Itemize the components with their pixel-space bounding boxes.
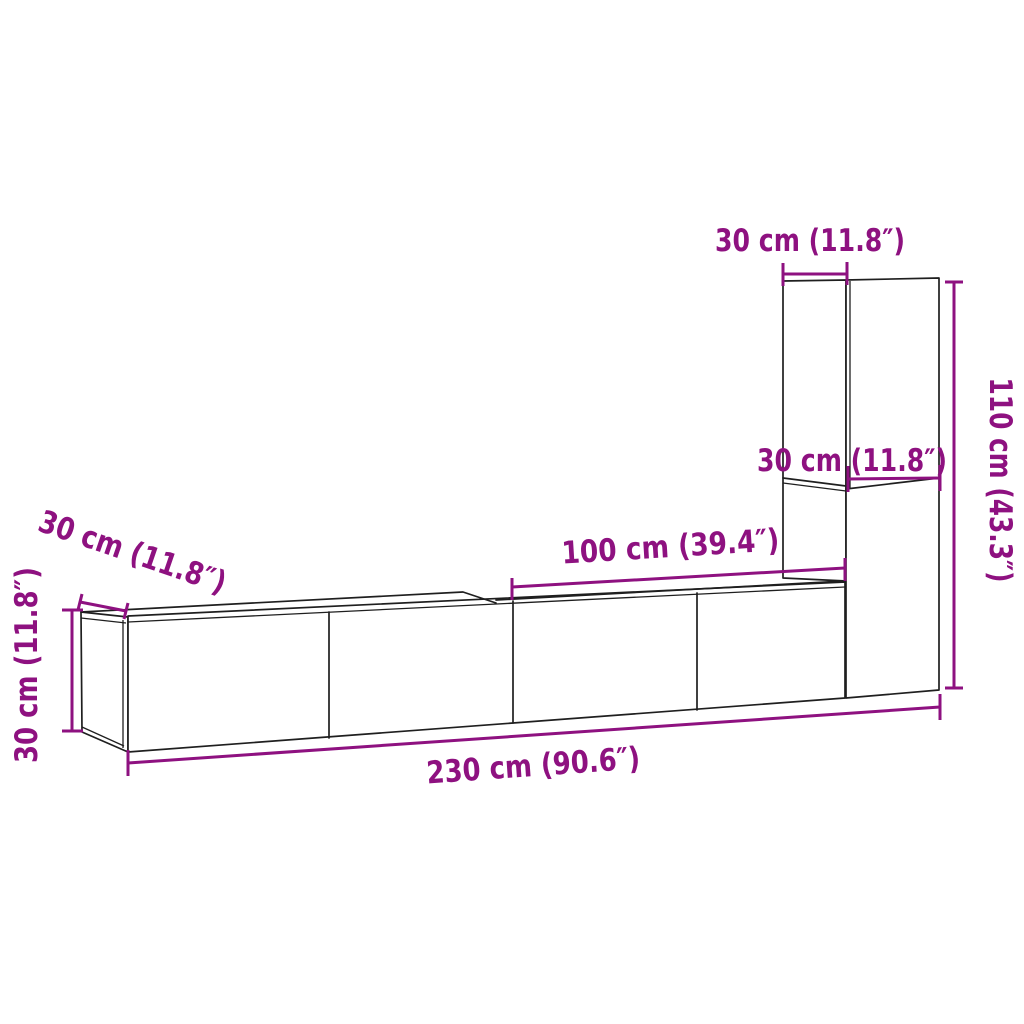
dim-label-tall-cabinet-height: 110 cm (43.3″) (982, 378, 1018, 583)
tall-cabinet-front-face (783, 280, 846, 581)
dim-tall-cabinet-height: 110 cm (43.3″) (945, 282, 1018, 688)
dim-label-right-unit-width: 100 cm (39.4″) (560, 522, 780, 571)
long-cabinet (81, 581, 845, 752)
long-cabinet-left-side-panel (81, 612, 128, 752)
dim-label-tall-cabinet-depth: 30 cm (11.8″) (757, 443, 947, 479)
dim-label-total-width: 230 cm (90.6″) (425, 741, 641, 792)
dim-line (80, 602, 126, 611)
dim-label-long-cabinet-depth: 30 cm (11.8″) (34, 504, 231, 602)
dim-long-cabinet-depth: 30 cm (11.8″) (34, 504, 231, 619)
furniture-dimension-diagram: 30 cm (11.8″) 30 cm (11.8″) 110 cm (43.3… (0, 0, 1024, 1024)
dim-long-cabinet-height: 30 cm (11.8″) (9, 567, 83, 763)
dim-tick (78, 594, 82, 610)
dim-label-long-cabinet-height: 30 cm (11.8″) (9, 567, 45, 763)
diagram-canvas: 30 cm (11.8″) 30 cm (11.8″) 110 cm (43.3… (0, 0, 1024, 1024)
dim-tall-cabinet-width: 30 cm (11.8″) (715, 223, 905, 286)
dim-label-tall-cabinet-width: 30 cm (11.8″) (715, 223, 905, 259)
long-cabinet-front-face (128, 582, 845, 752)
